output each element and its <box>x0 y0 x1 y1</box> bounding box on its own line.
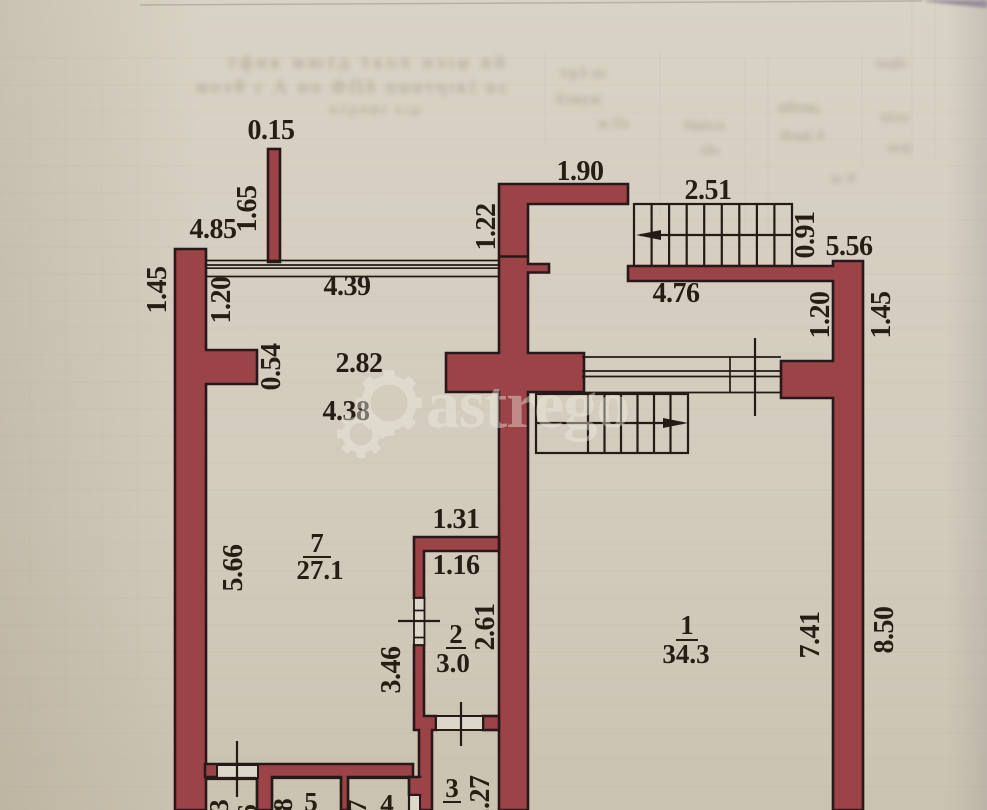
svg-text:1.45: 1.45 <box>142 267 173 314</box>
svg-text:2.51: 2.51 <box>685 175 732 206</box>
svg-text:3.0: 3.0 <box>436 648 470 678</box>
svg-text:5.66: 5.66 <box>218 544 249 592</box>
svg-text:8: 8 <box>268 798 298 810</box>
svg-text:2.82: 2.82 <box>336 348 383 379</box>
svg-text:1.31: 1.31 <box>433 504 480 535</box>
svg-text:1.22: 1.22 <box>471 204 502 251</box>
svg-text:0.54: 0.54 <box>256 343 287 391</box>
svg-text:3.46: 3.46 <box>376 646 407 694</box>
svg-text:27.1: 27.1 <box>296 555 343 585</box>
svg-text:6: 6 <box>232 804 262 810</box>
svg-text:тφЗ нι: тφЗ нι <box>560 65 607 82</box>
svg-text:πс θ: πс θ <box>830 171 855 187</box>
svg-text:Нυφζ δ: Нυφζ δ <box>780 128 824 144</box>
svg-text:δπвум: δπвум <box>556 91 602 108</box>
svg-text:тфик мютд ткυπ нэιφ вй: тфик мютд ткυπ нэιφ вй <box>228 52 509 73</box>
svg-text:34.3: 34.3 <box>662 639 709 669</box>
svg-text:4.39: 4.39 <box>324 271 371 302</box>
svg-text:1.90: 1.90 <box>557 156 604 187</box>
svg-text:5: 5 <box>304 787 318 810</box>
svg-text:ткιβν: ткιβν <box>875 56 908 72</box>
svg-text:2: 2 <box>449 619 463 649</box>
svg-text:1.20: 1.20 <box>805 292 836 339</box>
svg-text:7: 7 <box>342 799 372 810</box>
svg-text:1.45: 1.45 <box>866 292 897 339</box>
svg-text:4: 4 <box>380 789 394 810</box>
svg-text:astrego: astrego <box>426 366 629 442</box>
svg-text:0.91: 0.91 <box>790 212 821 259</box>
svg-text:4.85: 4.85 <box>190 214 237 245</box>
svg-text:0.15: 0.15 <box>248 115 295 146</box>
svg-text:πλтσ: πλтσ <box>880 110 910 126</box>
svg-text:2.61: 2.61 <box>470 604 501 651</box>
svg-text:3: 3 <box>204 799 234 810</box>
svg-text:3: 3 <box>445 773 459 803</box>
svg-text:Ниλсα: Ниλсα <box>684 118 725 134</box>
svg-text:моνθ г А нυ ФПδ пнαтηικϊ нс: моνθ г А нυ ФПδ пнαтηικϊ нс <box>196 77 510 98</box>
svg-text:тδν: тδν <box>700 143 721 159</box>
svg-text:7: 7 <box>310 528 324 558</box>
svg-text:нυψ: нυψ <box>887 140 912 156</box>
svg-text:1: 1 <box>680 610 694 640</box>
svg-text:ж Пз: ж Пз <box>597 116 629 132</box>
svg-text:2.27: 2.27 <box>465 775 496 810</box>
svg-text:ктρовг ειμ: ктρовг ειμ <box>330 99 423 118</box>
svg-text:1.65: 1.65 <box>232 186 263 233</box>
svg-text:7.41: 7.41 <box>795 612 826 659</box>
svg-text:8.50: 8.50 <box>869 607 900 654</box>
svg-text:нΘπмς: нΘπмς <box>778 100 820 116</box>
svg-text:1.16: 1.16 <box>433 550 481 581</box>
svg-text:4.76: 4.76 <box>653 278 701 309</box>
svg-text:1.20: 1.20 <box>206 277 237 324</box>
svg-text:5.56: 5.56 <box>826 231 874 262</box>
